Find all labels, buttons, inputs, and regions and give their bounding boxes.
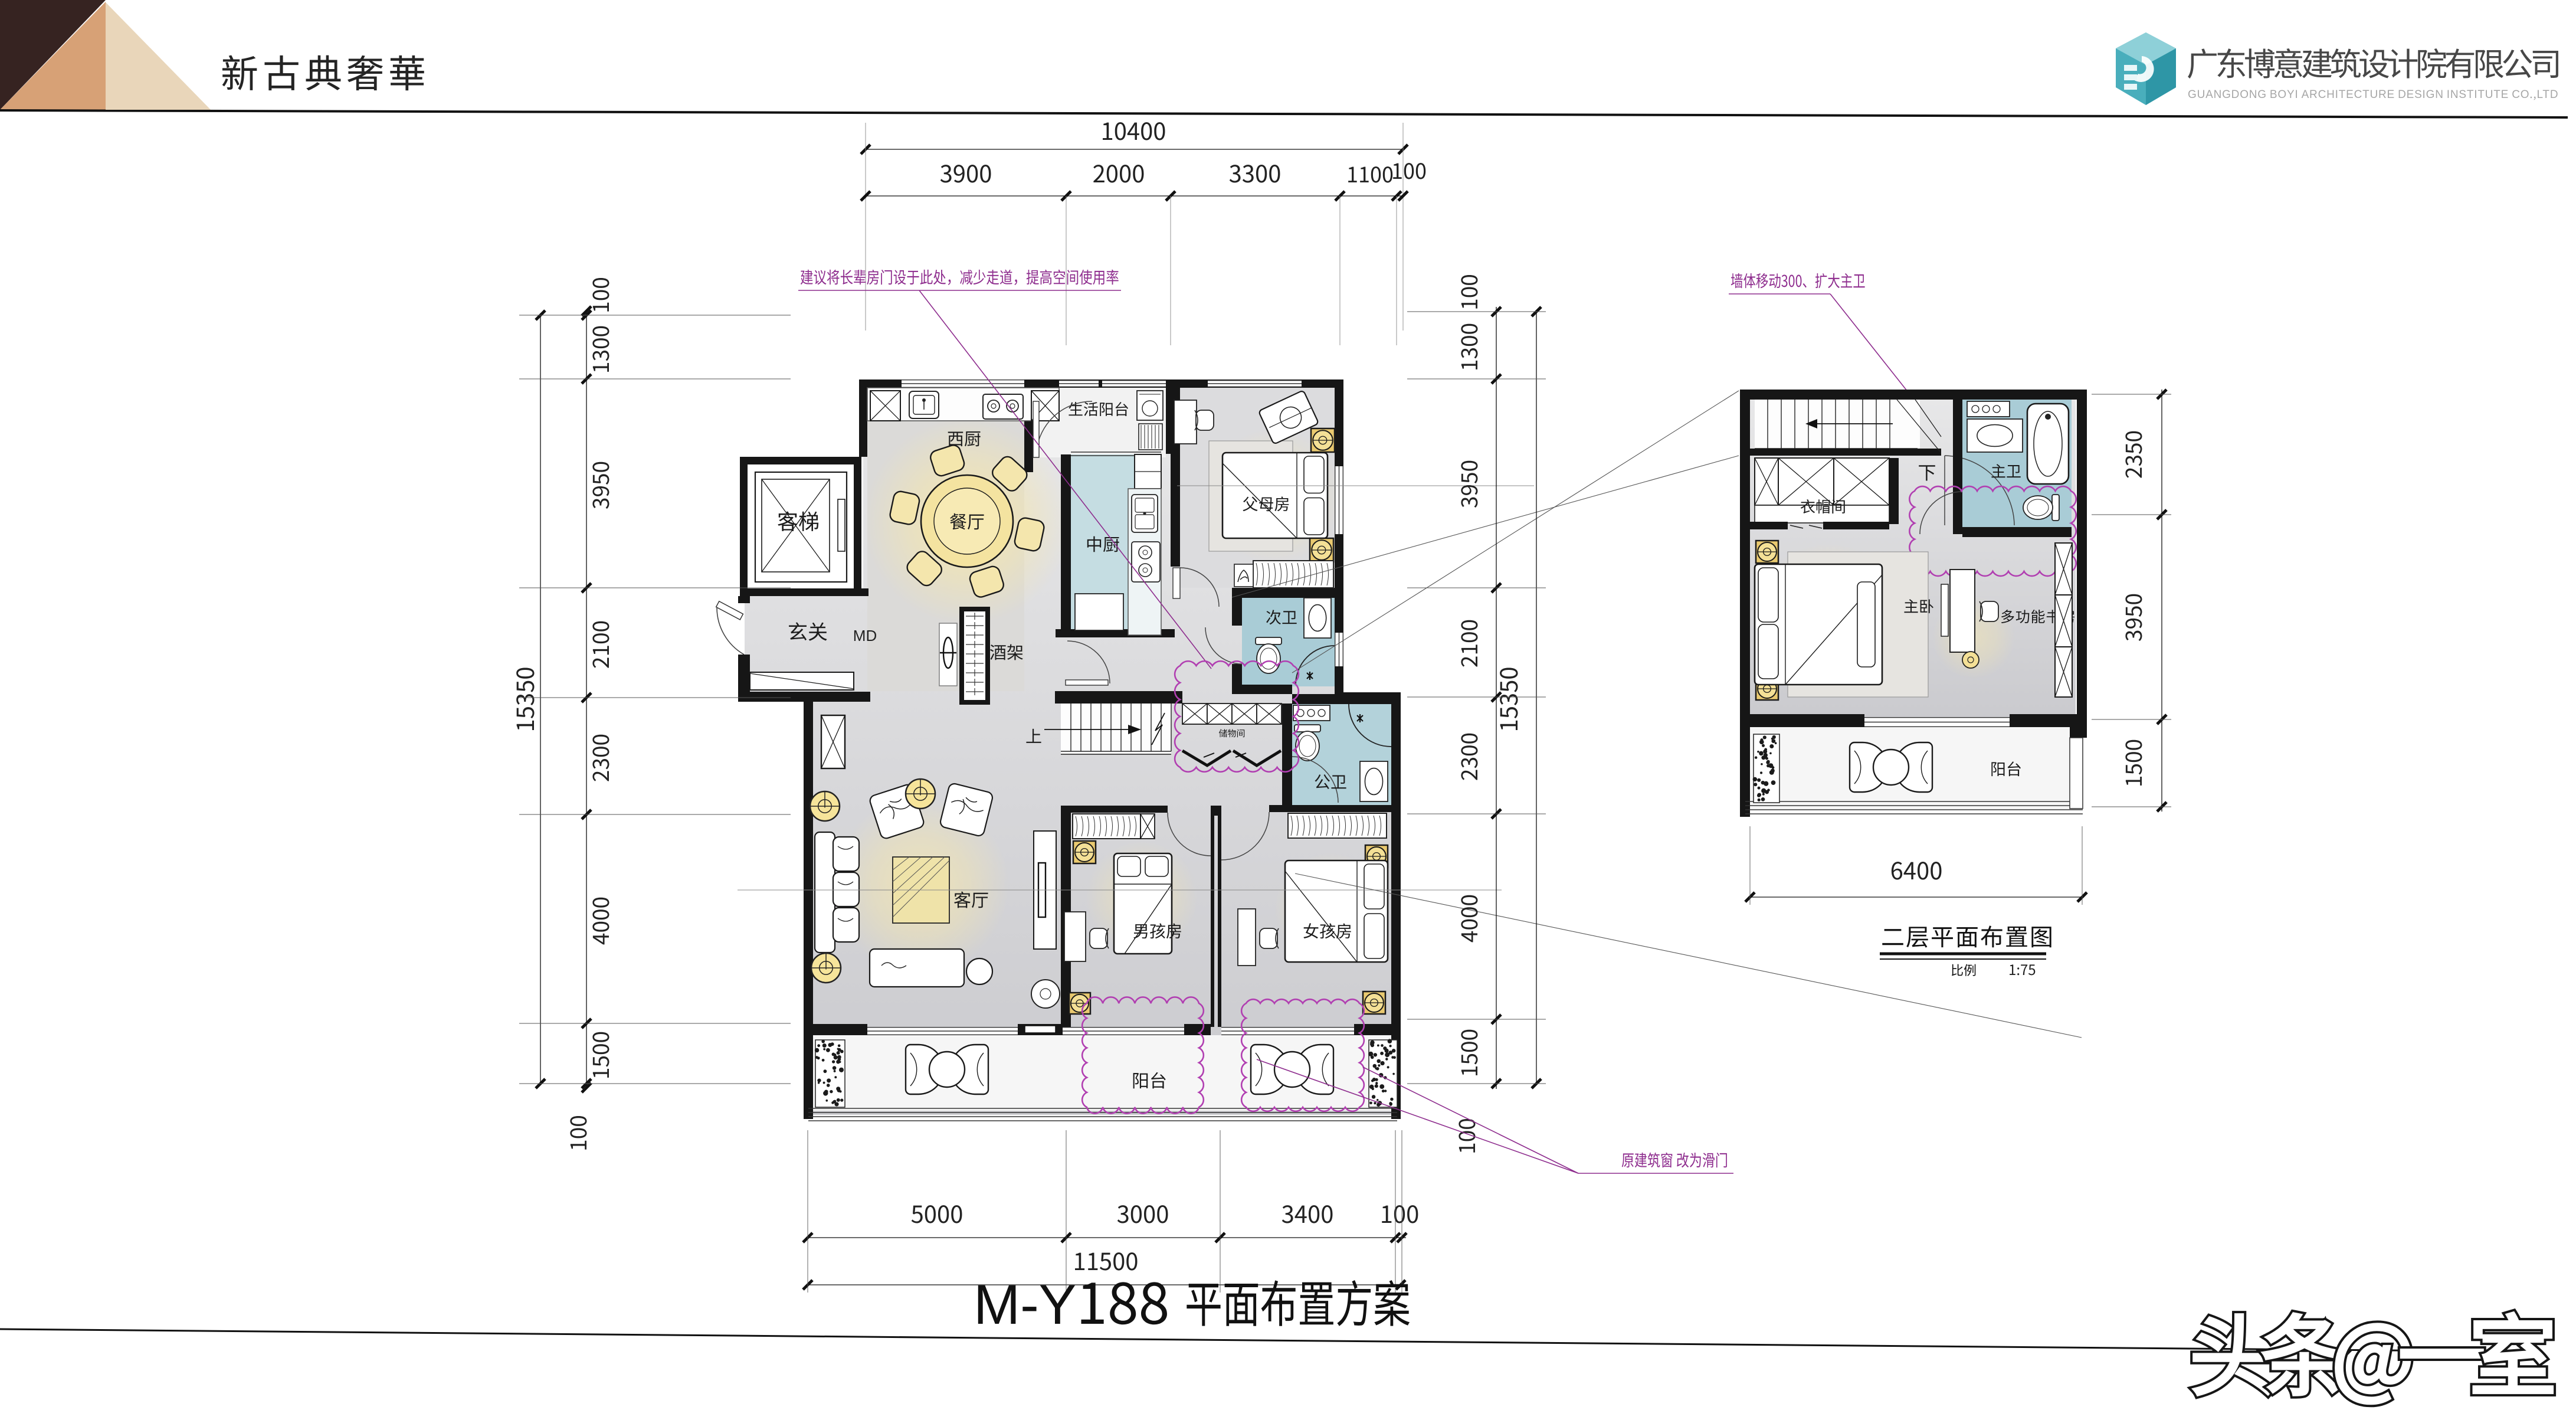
svg-text:储物间: 储物间 [1218,727,1245,740]
svg-text:100: 100 [584,277,615,313]
svg-text:2000: 2000 [1093,155,1145,189]
svg-text:100: 100 [1452,274,1484,310]
svg-text:3900: 3900 [940,155,992,189]
svg-text:MD: MD [853,624,877,646]
svg-text:玄关: 玄关 [788,616,828,645]
svg-text:酒架: 酒架 [989,639,1024,664]
svg-text:1300: 1300 [1452,323,1484,371]
svg-text:100: 100 [1391,155,1427,185]
svg-text:1100: 1100 [1346,158,1394,189]
svg-text:M-Y188: M-Y188 [974,1259,1169,1340]
svg-text:3000: 3000 [1117,1196,1169,1230]
svg-text:平面布置方案: 平面布置方案 [1185,1265,1411,1337]
svg-text:6400: 6400 [1890,852,1943,886]
svg-text:1500: 1500 [2116,739,2148,787]
svg-text:建议将长辈房门设于此处，减少走道，提高空间使用率: 建议将长辈房门设于此处，减少走道，提高空间使用率 [800,265,1119,288]
svg-text:15350: 15350 [507,667,541,732]
svg-text:3300: 3300 [1229,155,1282,189]
svg-text:GUANGDONG BOYI ARCHITECTURE DE: GUANGDONG BOYI ARCHITECTURE DESIGN INSTI… [2188,86,2558,102]
svg-text:男孩房: 男孩房 [1133,919,1182,943]
svg-text:4000: 4000 [1452,894,1484,943]
svg-text:2350: 2350 [2116,430,2148,479]
svg-text:头条@一室: 头条@一室 [2189,1286,2557,1414]
svg-text:1500: 1500 [1452,1029,1484,1077]
svg-text:1:75: 1:75 [2008,958,2036,979]
svg-text:父母房: 父母房 [1243,492,1290,515]
svg-text:主卧: 主卧 [1903,595,1934,617]
svg-text:1300: 1300 [584,325,615,374]
svg-text:3950: 3950 [1452,460,1484,508]
svg-text:主卫: 主卫 [1991,460,2021,482]
svg-text:2300: 2300 [1452,732,1484,781]
svg-text:餐厅: 餐厅 [949,508,985,534]
svg-text:2100: 2100 [1452,619,1484,668]
svg-text:15350: 15350 [1490,667,1525,732]
svg-text:10400: 10400 [1101,113,1166,147]
svg-text:下: 下 [1918,458,1936,485]
svg-text:原建筑窗 改为滑门: 原建筑窗 改为滑门 [1621,1148,1728,1172]
svg-text:女孩房: 女孩房 [1303,919,1352,943]
svg-text:1500: 1500 [584,1031,615,1079]
svg-text:广东博意建筑设计院有限公司: 广东博意建筑设计院有限公司 [2187,38,2562,85]
svg-text:上: 上 [1025,724,1042,748]
svg-text:二层平面布置图: 二层平面布置图 [1881,918,2054,953]
svg-text:阳台: 阳台 [1990,757,2022,780]
svg-text:客梯: 客梯 [777,505,820,536]
svg-text:5000: 5000 [911,1196,963,1230]
svg-text:墙体移动300、扩大主卫: 墙体移动300、扩大主卫 [1731,269,1866,292]
svg-text:4000: 4000 [584,897,615,945]
svg-text:公卫: 公卫 [1314,770,1347,793]
svg-text:2300: 2300 [584,734,615,782]
svg-text:次卫: 次卫 [1266,605,1297,628]
svg-text:阳台: 阳台 [1132,1066,1167,1092]
svg-text:2100: 2100 [584,620,615,669]
svg-text:新古典奢華: 新古典奢華 [221,44,430,99]
svg-text:3950: 3950 [2116,593,2148,642]
svg-text:衣帽间: 衣帽间 [1800,495,1846,517]
svg-text:3400: 3400 [1282,1196,1334,1230]
svg-text:100: 100 [561,1115,593,1151]
svg-text:比例: 比例 [1951,960,1977,979]
svg-text:100: 100 [1380,1196,1420,1230]
svg-text:生活阳台: 生活阳台 [1068,398,1129,420]
svg-text:3950: 3950 [584,461,615,509]
